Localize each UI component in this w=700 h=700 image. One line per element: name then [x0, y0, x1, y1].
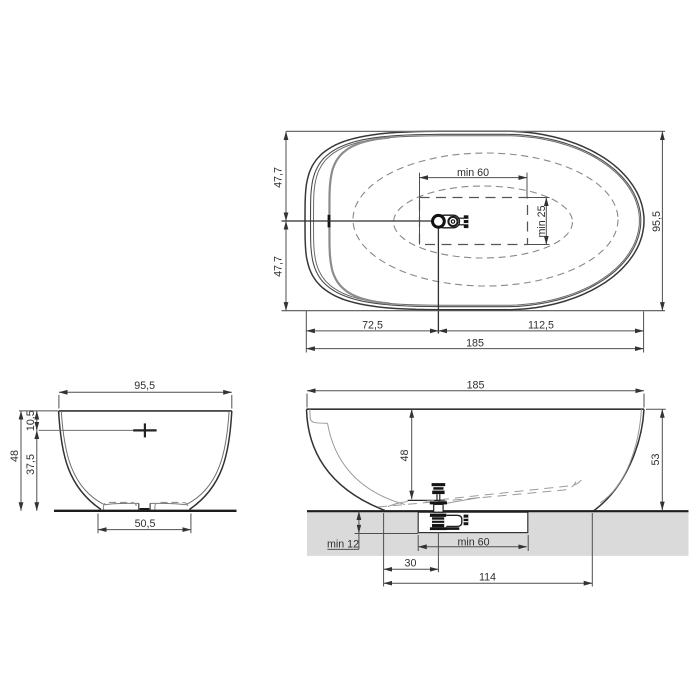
svg-text:112,5: 112,5 — [528, 319, 554, 331]
svg-text:min 60: min 60 — [457, 536, 489, 548]
svg-text:min 25: min 25 — [536, 205, 548, 237]
svg-text:114: 114 — [479, 572, 496, 584]
svg-text:min 12: min 12 — [327, 539, 359, 551]
svg-text:47,7: 47,7 — [273, 256, 285, 277]
svg-text:47,7: 47,7 — [273, 167, 285, 188]
svg-text:min 60: min 60 — [457, 167, 489, 179]
svg-text:50,5: 50,5 — [135, 518, 156, 530]
svg-text:30: 30 — [405, 557, 417, 569]
svg-text:53: 53 — [650, 454, 662, 466]
svg-text:72,5: 72,5 — [362, 319, 383, 331]
svg-text:10,5: 10,5 — [25, 410, 37, 431]
svg-text:95,5: 95,5 — [134, 380, 155, 392]
svg-text:185: 185 — [467, 379, 485, 391]
svg-text:95,5: 95,5 — [651, 211, 663, 232]
svg-text:48: 48 — [9, 450, 21, 462]
svg-text:48: 48 — [399, 450, 411, 462]
svg-text:185: 185 — [466, 337, 484, 349]
svg-text:37,5: 37,5 — [25, 454, 37, 475]
